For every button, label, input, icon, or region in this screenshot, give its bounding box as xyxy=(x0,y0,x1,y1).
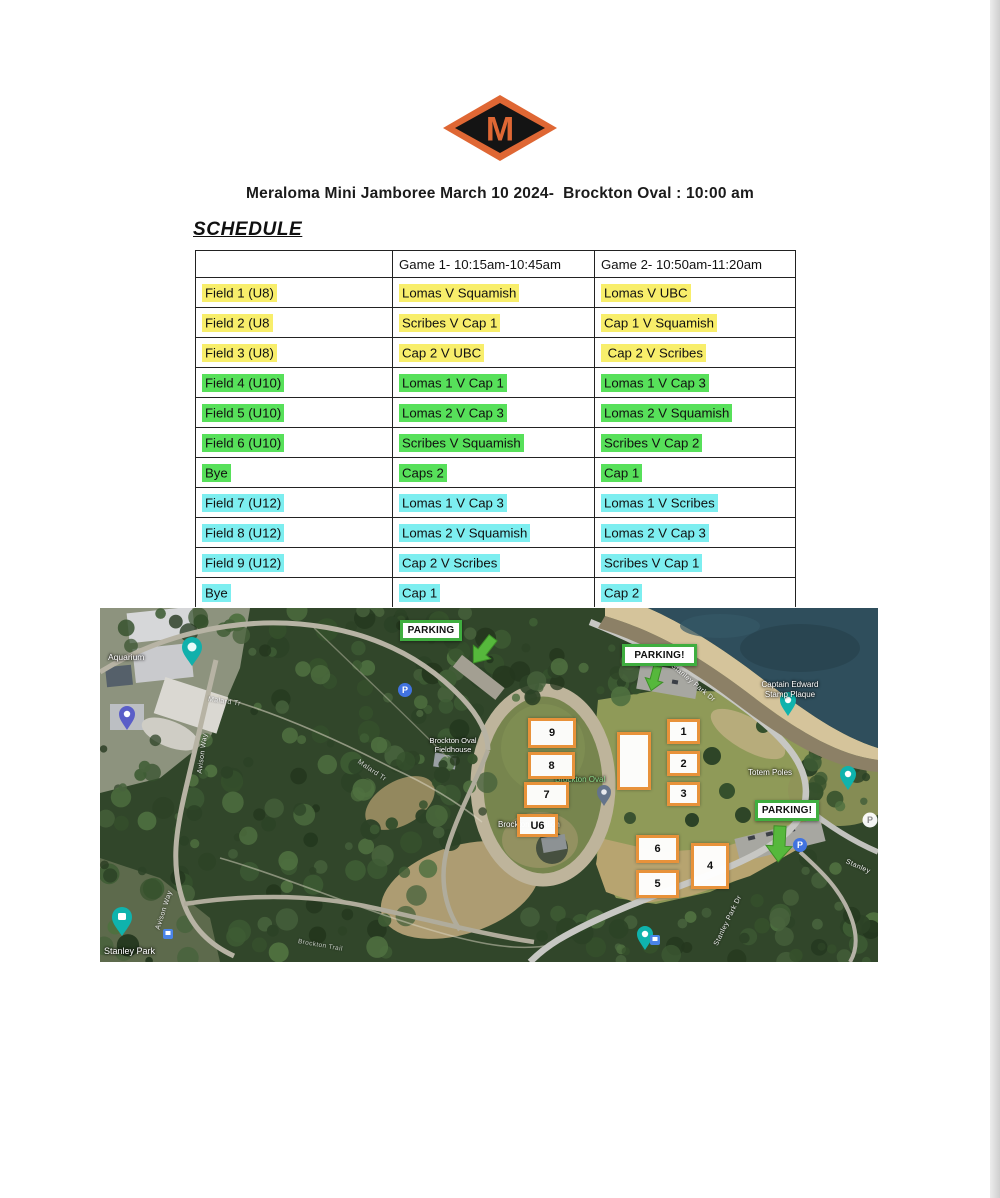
highlighted-text: Scribes V Squamish xyxy=(399,434,524,452)
highlighted-text: Lomas 2 V Cap 3 xyxy=(399,404,507,422)
table-cell: Cap 2 V UBC xyxy=(393,338,595,368)
table-cell: Cap 1 xyxy=(595,458,796,488)
table-cell: Lomas 1 V Scribes xyxy=(595,488,796,518)
table-cell: Lomas 2 V Cap 3 xyxy=(595,518,796,548)
highlighted-text: Field 8 (U12) xyxy=(202,524,284,542)
map-label-plaque-line2: Stamp Plaque xyxy=(748,690,832,700)
highlighted-text: Field 2 (U8 xyxy=(202,314,273,332)
header-cell: Game 1- 10:15am-10:45am xyxy=(393,251,595,278)
map-label-fieldhouse-line2: Fieldhouse xyxy=(416,745,490,754)
table-cell: Cap 2 V Scribes xyxy=(595,338,796,368)
map-label-plaque-line1: Captain Edward xyxy=(748,680,832,690)
highlighted-text: Scribes V Cap 2 xyxy=(601,434,702,452)
field-marker: 3 xyxy=(667,782,700,806)
page-edge-shadow xyxy=(990,0,1000,1198)
highlighted-text: Field 3 (U8) xyxy=(202,344,277,362)
field-marker: 2 xyxy=(667,751,700,776)
field-marker: 4 xyxy=(691,843,729,889)
table-cell: Scribes V Cap 2 xyxy=(595,428,796,458)
table-row: ByeCap 1Cap 2 xyxy=(196,578,796,608)
field-marker: 6 xyxy=(636,835,679,863)
table-cell: Field 2 (U8 xyxy=(196,308,393,338)
table-cell: Lomas 2 V Cap 3 xyxy=(393,398,595,428)
field-marker: U6 xyxy=(517,814,558,837)
table-cell: Lomas 2 V Squamish xyxy=(393,518,595,548)
highlighted-text: Field 7 (U12) xyxy=(202,494,284,512)
table-cell: Field 7 (U12) xyxy=(196,488,393,518)
map-label-fieldhouse: Brockton Oval Fieldhouse xyxy=(416,736,490,754)
svg-text:P: P xyxy=(402,685,408,695)
table-cell: Scribes V Cap 1 xyxy=(595,548,796,578)
svg-text:P: P xyxy=(797,840,803,850)
table-cell: Field 5 (U10) xyxy=(196,398,393,428)
field-marker: 8 xyxy=(528,752,575,779)
meraloma-logo-icon: M xyxy=(440,94,560,162)
table-row: Field 8 (U12)Lomas 2 V SquamishLomas 2 V… xyxy=(196,518,796,548)
logo-letter: M xyxy=(486,111,514,149)
table-cell: Field 4 (U10) xyxy=(196,368,393,398)
transit-icon xyxy=(650,935,660,945)
table-cell: Cap 1 V Squamish xyxy=(595,308,796,338)
table-cell: Lomas V UBC xyxy=(595,278,796,308)
table-cell: Caps 2 xyxy=(393,458,595,488)
map-terrain: P P P xyxy=(100,608,878,962)
field-marker: 1 xyxy=(667,719,700,744)
highlighted-text: Cap 2 V Scribes xyxy=(399,554,500,572)
highlighted-text: Cap 1 xyxy=(399,584,440,602)
highlighted-text: Lomas 2 V Squamish xyxy=(601,404,732,422)
map-label-aquarium: Aquarium xyxy=(108,652,144,662)
highlighted-text: Scribes V Cap 1 xyxy=(399,314,500,332)
svg-text:P: P xyxy=(867,815,873,825)
table-cell: Lomas 1 V Cap 3 xyxy=(393,488,595,518)
highlighted-text: Cap 1 xyxy=(601,464,642,482)
table-cell: Scribes V Squamish xyxy=(393,428,595,458)
highlighted-text: Caps 2 xyxy=(399,464,447,482)
highlighted-text: Field 1 (U8) xyxy=(202,284,277,302)
table-row: Field 1 (U8)Lomas V SquamishLomas V UBC xyxy=(196,278,796,308)
table-row: Field 7 (U12)Lomas 1 V Cap 3Lomas 1 V Sc… xyxy=(196,488,796,518)
field-marker: 7 xyxy=(524,782,569,808)
table-cell: Field 6 (U10) xyxy=(196,428,393,458)
highlighted-text: Bye xyxy=(202,584,231,602)
table-row: Field 5 (U10)Lomas 2 V Cap 3Lomas 2 V Sq… xyxy=(196,398,796,428)
table-cell: Cap 2 xyxy=(595,578,796,608)
highlighted-text: Field 9 (U12) xyxy=(202,554,284,572)
parking-callout: PARKING xyxy=(400,620,462,641)
field-marker xyxy=(617,732,651,790)
park-map-image: P P P Aquarium Brockton Oval Fieldhouse xyxy=(100,608,878,962)
map-label-stanley-park: Stanley Park xyxy=(104,946,155,957)
highlighted-text: Lomas 2 V Squamish xyxy=(399,524,530,542)
schedule-table: Game 1- 10:15am-10:45amGame 2- 10:50am-1… xyxy=(195,250,796,607)
map-label-fieldhouse-line1: Brockton Oval xyxy=(416,736,490,745)
field-marker: 5 xyxy=(636,870,679,898)
table-cell: Lomas 1 V Cap 1 xyxy=(393,368,595,398)
highlighted-text: Lomas 1 V Cap 3 xyxy=(399,494,507,512)
highlighted-text: Lomas 2 V Cap 3 xyxy=(601,524,709,542)
highlighted-text: Cap 2 V UBC xyxy=(399,344,484,362)
table-row: Field 3 (U8)Cap 2 V UBC Cap 2 V Scribes xyxy=(196,338,796,368)
table-cell: Field 8 (U12) xyxy=(196,518,393,548)
highlighted-text: Field 4 (U10) xyxy=(202,374,284,392)
header-cell: Game 2- 10:50am-11:20am xyxy=(595,251,796,278)
highlighted-text: Cap 1 V Squamish xyxy=(601,314,717,332)
table-cell: Lomas V Squamish xyxy=(393,278,595,308)
header-cell xyxy=(196,251,393,278)
parking-p-icon: P xyxy=(863,813,878,828)
table-cell: Bye xyxy=(196,578,393,608)
highlighted-text: Cap 2 xyxy=(601,584,642,602)
highlighted-text: Lomas V Squamish xyxy=(399,284,519,302)
table-cell: Scribes V Cap 1 xyxy=(393,308,595,338)
table-row: ByeCaps 2Cap 1 xyxy=(196,458,796,488)
highlighted-text: Bye xyxy=(202,464,231,482)
table-row: Field 9 (U12)Cap 2 V ScribesScribes V Ca… xyxy=(196,548,796,578)
table-row: Field 6 (U10)Scribes V SquamishScribes V… xyxy=(196,428,796,458)
parking-callout: PARKING! xyxy=(755,800,819,821)
table-row: Field 4 (U10)Lomas 1 V Cap 1Lomas 1 V Ca… xyxy=(196,368,796,398)
table-row: Field 2 (U8Scribes V Cap 1Cap 1 V Squami… xyxy=(196,308,796,338)
highlighted-text: Lomas 1 V Scribes xyxy=(601,494,718,512)
highlighted-text: Cap 2 V Scribes xyxy=(601,344,706,362)
parking-p-icon: P xyxy=(398,683,412,697)
map-label-plaque: Captain Edward Stamp Plaque xyxy=(748,680,832,699)
table-cell: Lomas 2 V Squamish xyxy=(595,398,796,428)
page-title: Meraloma Mini Jamboree March 10 2024- Br… xyxy=(0,185,1000,203)
highlighted-text: Lomas 1 V Cap 3 xyxy=(601,374,709,392)
table-cell: Lomas 1 V Cap 3 xyxy=(595,368,796,398)
table-cell: Field 3 (U8) xyxy=(196,338,393,368)
table-cell: Field 1 (U8) xyxy=(196,278,393,308)
table-cell: Bye xyxy=(196,458,393,488)
parking-p-icon: P xyxy=(793,838,807,852)
table-cell: Cap 2 V Scribes xyxy=(393,548,595,578)
map-label-totem-poles: Totem Poles xyxy=(748,768,792,778)
highlighted-text: Scribes V Cap 1 xyxy=(601,554,702,572)
schedule-heading: SCHEDULE xyxy=(193,219,302,241)
highlighted-text: Field 5 (U10) xyxy=(202,404,284,422)
highlighted-text: Lomas 1 V Cap 1 xyxy=(399,374,507,392)
transit-icon xyxy=(163,929,173,939)
highlighted-text: Lomas V UBC xyxy=(601,284,691,302)
parking-callout: PARKING! xyxy=(622,644,697,666)
highlighted-text: Field 6 (U10) xyxy=(202,434,284,452)
field-marker: 9 xyxy=(528,718,576,748)
table-cell: Cap 1 xyxy=(393,578,595,608)
table-cell: Field 9 (U12) xyxy=(196,548,393,578)
